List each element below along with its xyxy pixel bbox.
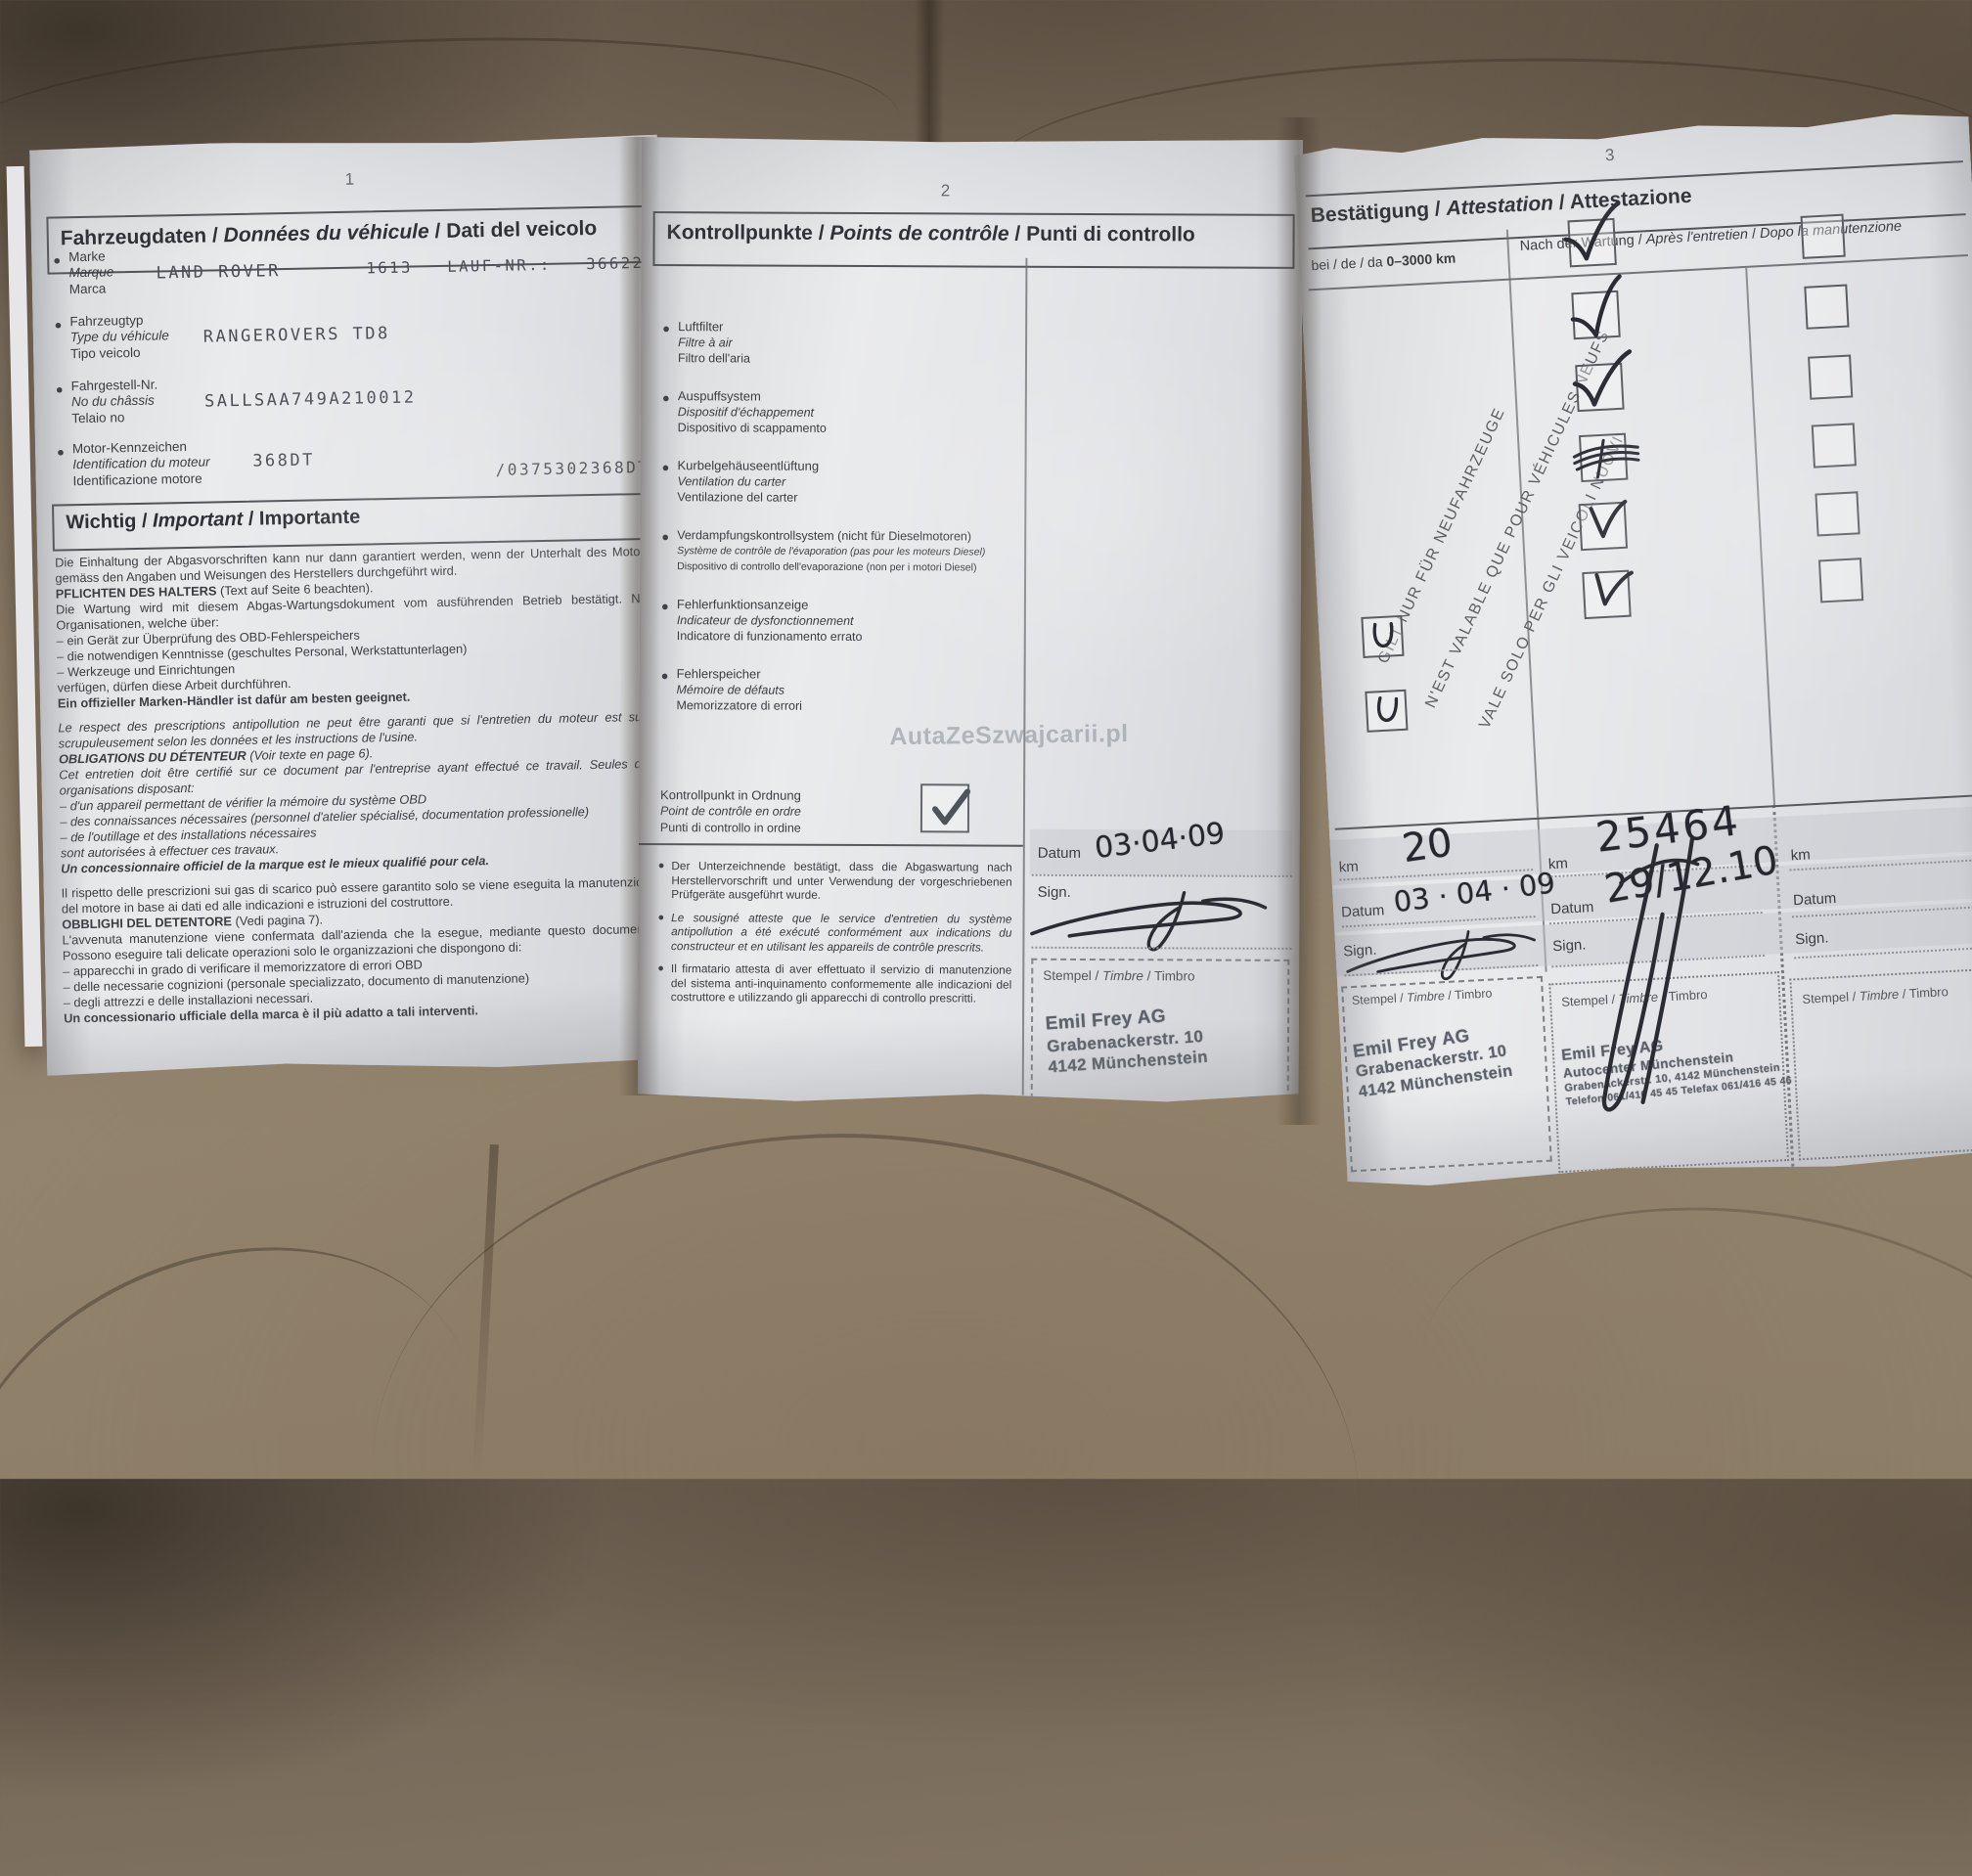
item-fr: Système de contrôle de l'évaporation (pa… xyxy=(677,543,1023,560)
checkpoint-ok-line: Kontrollpunkt in Ordnung Point de contrô… xyxy=(660,786,905,837)
col1-range: 0–3000 km xyxy=(1386,249,1457,269)
sign-label: Sign. xyxy=(1795,929,1829,948)
label-it: Marca xyxy=(69,281,114,297)
stamp-box-1: Stempel / Timbre / Timbro Emil Frey AG G… xyxy=(1341,976,1552,1173)
stempel-de: Stempel xyxy=(1352,992,1398,1007)
page-number: 3 xyxy=(1605,146,1616,165)
bullet-icon: ● xyxy=(661,600,669,612)
bullet-icon: ● xyxy=(661,669,669,682)
lead-bold: PFLICHTEN DES HALTERS xyxy=(56,583,217,601)
label-de: Marke xyxy=(68,248,113,265)
bullet-icon: ● xyxy=(56,382,64,395)
note-italian: ● Il firmatario attesta di aver effettua… xyxy=(657,961,1011,1005)
checkbox-empty-row2 xyxy=(1804,285,1849,330)
km-label: km xyxy=(1338,859,1359,876)
dealer-stamp: Emil Frey AG Grabenackerstr. 10 4142 Mün… xyxy=(1045,1003,1209,1078)
date-label: Datum xyxy=(1793,890,1837,909)
bullet-icon: ● xyxy=(54,318,62,331)
checkpoints-header: Kontrollpunkte / Points de contrôle / Pu… xyxy=(652,211,1294,269)
lead-rest: (Text auf Seite 6 beachten). xyxy=(216,580,373,598)
note-french: ● Le sousigné atteste que le service d'e… xyxy=(657,911,1011,955)
bullet-icon: ● xyxy=(662,322,670,335)
label-de: Fahrzeugtyp xyxy=(69,312,168,330)
stempel-fr: Timbre xyxy=(1102,968,1143,983)
item-fr: Indicateur de dysfonctionnement xyxy=(677,612,1023,630)
item-fr: Filtre à air xyxy=(678,335,1024,352)
typed-lauf-nr: 1613 LAUF-NR.: 36622 xyxy=(366,254,644,277)
item-fr: Dispositif d'échappement xyxy=(678,404,1024,422)
handwritten-check xyxy=(1584,498,1630,549)
bullet-icon: ● xyxy=(661,530,669,543)
ok-de: Kontrollpunkt in Ordnung xyxy=(660,786,905,804)
stempel-it: Timbro xyxy=(1908,984,1949,1001)
bullet-icon: ● xyxy=(661,461,669,473)
title-fr: Points de contrôle xyxy=(829,222,1008,246)
field-engine-id: ● Motor-Kennzeichen Identification du mo… xyxy=(57,428,650,501)
item-de: Luftfilter xyxy=(678,319,1024,336)
km-label: km xyxy=(1790,846,1811,864)
label-fr: Marque xyxy=(68,265,113,282)
item-de: Fehlerspeicher xyxy=(677,666,1023,684)
item-it: Ventilazione del carter xyxy=(677,489,1023,507)
handwritten-check xyxy=(1563,276,1636,342)
seat-backrest-gap xyxy=(915,0,944,147)
label-fr: No du châssis xyxy=(71,393,158,411)
separator: / xyxy=(1092,968,1102,983)
notes-separator-line xyxy=(639,843,1023,847)
lead-rest: (Vedi pagina 7). xyxy=(232,912,323,928)
stempel-it: Timbro xyxy=(1455,987,1493,1003)
item-it: Memorizzatore di errori xyxy=(676,697,1022,715)
seat-seam-bottom-left xyxy=(0,1163,553,1776)
field-vehicle-type: ● Fahrzeugtyp Type du véhicule Tipo veic… xyxy=(54,301,648,374)
km-label: km xyxy=(1547,855,1568,872)
watermark: AutaZeSzwajcarii.pl xyxy=(889,720,1129,751)
handwritten-check xyxy=(1588,566,1634,617)
note-text: Il firmatario attesta di aver effettuato… xyxy=(671,961,1012,1005)
checkbox-empty-row3 xyxy=(1808,354,1853,399)
col2-col3-divider xyxy=(1745,268,1775,805)
item-it: Dispositivo di scappamento xyxy=(678,420,1024,437)
checkpoint-exhaust-system: ● Auspuffsystem Dispositif d'échappement… xyxy=(662,388,1024,437)
checkpoint-fault-memory: ● Fehlerspeicher Mémoire de défauts Memo… xyxy=(660,666,1022,715)
separator: / xyxy=(1428,198,1447,221)
seat-cushion-crease xyxy=(472,1144,499,1477)
bullet-icon: ● xyxy=(657,963,664,1005)
checkbox-empty-row5 xyxy=(1815,491,1860,536)
handwritten-check xyxy=(1566,346,1639,413)
item-fr: Mémoire de défauts xyxy=(676,682,1022,699)
checkbox-empty-row1 xyxy=(1801,214,1846,259)
checkpoint-crankcase-ventilation: ● Kurbelgehäuseentlüftung Ventilation du… xyxy=(661,458,1023,507)
handwritten-check xyxy=(1369,619,1397,651)
title-de: Kontrollpunkte xyxy=(667,221,813,245)
page-number: 1 xyxy=(345,170,355,190)
printed-checkmark-icon xyxy=(926,783,973,830)
separator: / xyxy=(1748,226,1761,243)
date-dotted-line xyxy=(1032,874,1292,877)
label-fr: Type du véhicule xyxy=(70,329,169,346)
bullet-icon: ● xyxy=(657,913,664,954)
col1-prefix: bei / de / da xyxy=(1311,253,1387,273)
note-german: ● Der Unterzeichnende bestätigt, dass di… xyxy=(658,859,1012,903)
separator: / xyxy=(243,509,259,530)
bullet-icon: ● xyxy=(53,253,61,266)
separator: / xyxy=(1899,986,1909,1002)
item-it: Indicatore di funzionamento errato xyxy=(677,628,1023,646)
stempel-fr: Timbre xyxy=(1407,989,1445,1005)
column1-header: bei / de / da 0–3000 km xyxy=(1311,249,1457,273)
stamp-box: Stempel / Timbre / Timbro Emil Frey AG G… xyxy=(1031,959,1290,1110)
stempel-it: Timbro xyxy=(1154,968,1195,983)
important-header: Wichtig / Important / Importante xyxy=(52,493,651,552)
seat-cushion-seam xyxy=(348,1101,1383,1876)
french-section: Le respect des prescriptions antipolluti… xyxy=(58,709,656,877)
important-it: Importante xyxy=(259,507,361,530)
dealer-stamp: Emil Frey AG Grabenackerstr. 10 4142 Mün… xyxy=(1351,1018,1513,1102)
label-it: Identificazione motore xyxy=(72,470,210,489)
typed-engine-value: 368DT xyxy=(252,450,315,470)
handwritten-check xyxy=(1557,200,1631,266)
lead-rest: (Voir texte en page 6). xyxy=(246,745,374,762)
signature-large xyxy=(1573,835,1734,1126)
typed-chassis-value: SALLSAA749A210012 xyxy=(204,387,417,411)
bullet-icon: ● xyxy=(57,445,65,458)
page-3-attestation: 3 Bestätigung / Attestation / Attestazio… xyxy=(1293,110,1972,1192)
item-de: Fehlerfunktionsanzeige xyxy=(677,597,1023,614)
checkbox-empty-row4 xyxy=(1812,423,1857,468)
label-it: Telaio no xyxy=(71,409,158,426)
checkbox-empty-row6 xyxy=(1818,558,1863,603)
item-fr: Ventilation du carter xyxy=(677,473,1023,491)
item-de: Auspuffsystem xyxy=(678,388,1024,406)
typed-engine-number: /0375302368DT xyxy=(496,458,650,479)
handwritten-scribble xyxy=(1569,436,1643,481)
checkpoint-air-filter: ● Luftfilter Filtre à air Filtro dell'ar… xyxy=(662,319,1024,368)
separator: / xyxy=(813,222,830,245)
typed-type-value: RANGEROVERS TD8 xyxy=(203,324,390,347)
page-1-vehicle-data: 1 Fahrzeugdaten / Données du véhicule / … xyxy=(29,135,675,1076)
field-brand: ● Marke Marque Marca LAND ROVER 1613 LAU… xyxy=(53,237,647,309)
page-number: 2 xyxy=(941,181,951,201)
label-de: Fahrgestell-Nr. xyxy=(71,378,158,395)
seat-wrinkle xyxy=(1393,1162,1972,1639)
date-label: Datum xyxy=(1341,902,1385,920)
separator: / xyxy=(1849,989,1860,1005)
note-text: Le sousigné atteste que le service d'ent… xyxy=(671,911,1012,955)
important-de: Wichtig xyxy=(66,511,136,533)
stempel-de: Stempel xyxy=(1802,989,1849,1005)
separator: / xyxy=(1143,968,1154,983)
item-it: Dispositivo di controllo dell'evaporazio… xyxy=(677,558,1023,576)
item-it: Filtro dell'aria xyxy=(678,350,1024,368)
date-label: Datum xyxy=(1038,845,1081,862)
typed-brand-value: LAND ROVER xyxy=(156,261,281,283)
checkpoint-evaporation-control: ● Verdampfungskontrollsystem (nicht für … xyxy=(661,527,1023,576)
bullet-icon: ● xyxy=(658,861,665,902)
ok-fr: Point de contrôle en ordre xyxy=(660,803,905,821)
field-chassis-no: ● Fahrgestell-Nr. No du châssis Telaio n… xyxy=(56,366,650,438)
important-fr: Important xyxy=(153,509,244,532)
title-fr: Attestation xyxy=(1446,192,1554,220)
handwritten-km-0-3000: 20 xyxy=(1400,820,1456,871)
stamp-box-3: Stempel / Timbre / Timbro xyxy=(1789,967,1972,1161)
note-text: Der Unterzeichnende bestätigt, dass die … xyxy=(671,859,1012,903)
german-section: Die Einhaltung der Abgasvorschriften kan… xyxy=(55,544,653,712)
item-de: Kurbelgehäuseentlüftung xyxy=(677,458,1023,475)
stempel-fr: Timbre xyxy=(1860,987,1900,1004)
bullet-icon: ● xyxy=(662,391,670,404)
separator: / xyxy=(206,224,224,246)
label-it: Tipo veicolo xyxy=(70,344,169,362)
stempel-de: Stempel xyxy=(1043,968,1092,983)
signature xyxy=(1027,888,1277,954)
separator: / xyxy=(1009,223,1027,246)
separator: / xyxy=(428,220,446,243)
handwritten-check xyxy=(1373,693,1401,726)
item-de: Verdampfungskontrollsystem (nicht für Di… xyxy=(677,527,1023,545)
title-de: Bestätigung xyxy=(1310,199,1429,227)
page-2-checkpoints: 2 Kontrollpunkte / Points de contrôle / … xyxy=(638,137,1303,1106)
ok-it: Punti di controllo in ordine xyxy=(660,820,905,837)
title-it: Punti di controllo xyxy=(1026,223,1195,246)
separator: / xyxy=(136,511,153,532)
italian-section: Il rispetto delle prescrizioni sui gas d… xyxy=(62,874,660,1027)
checkpoint-malfunction-indicator: ● Fehlerfunktionsanzeige Indicateur de d… xyxy=(661,597,1023,646)
